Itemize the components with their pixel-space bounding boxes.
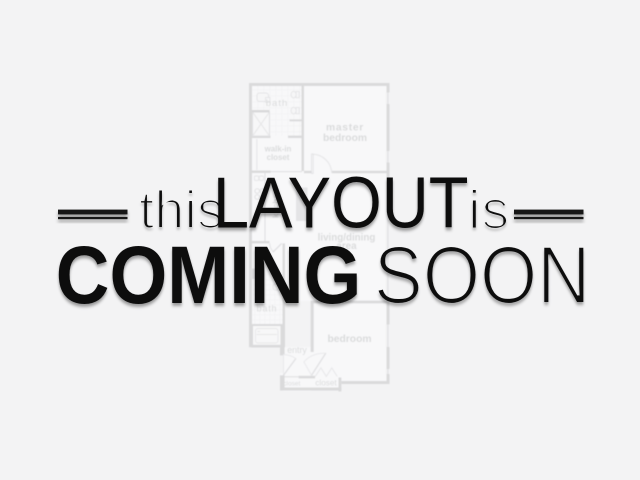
svg-text:closet: closet xyxy=(315,378,337,387)
svg-text:bath: bath xyxy=(266,98,289,109)
svg-text:COMING: COMING xyxy=(56,229,362,321)
svg-text:bedroom: bedroom xyxy=(323,133,367,144)
svg-text:master: master xyxy=(326,123,364,134)
svg-text:closet: closet xyxy=(267,153,290,162)
svg-text:entry: entry xyxy=(287,345,307,355)
svg-text:bedroom: bedroom xyxy=(327,334,371,345)
svg-text:closet: closet xyxy=(283,380,300,387)
svg-text:SOON: SOON xyxy=(374,231,590,321)
